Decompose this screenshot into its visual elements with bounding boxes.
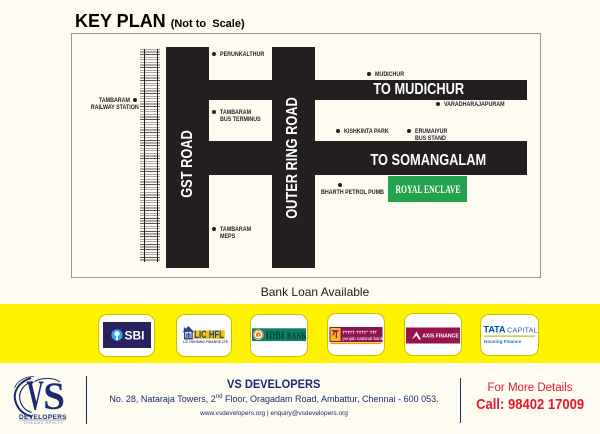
svg-text:S: S — [43, 375, 65, 418]
svg-text:TATA: TATA — [484, 325, 506, 335]
svg-text:SBI: SBI — [125, 329, 145, 343]
svg-text:V: V — [27, 375, 44, 419]
svg-text:IDBI: IDBI — [266, 330, 285, 343]
svg-text:LIC HOUSING FINANCE LTD: LIC HOUSING FINANCE LTD — [183, 340, 229, 344]
svg-text:DEVELOPERS: DEVELOPERS — [19, 414, 67, 421]
svg-text:CAPITAL: CAPITAL — [507, 326, 538, 335]
svg-text:AXIS FINANCE: AXIS FINANCE — [422, 333, 459, 339]
svg-text:DREAMS REALTY: DREAMS REALTY — [24, 421, 64, 425]
svg-text:BANK: BANK — [287, 331, 307, 341]
svg-text:Housing Finance: Housing Finance — [484, 339, 521, 344]
svg-text:punjab national bank: punjab national bank — [343, 336, 384, 341]
